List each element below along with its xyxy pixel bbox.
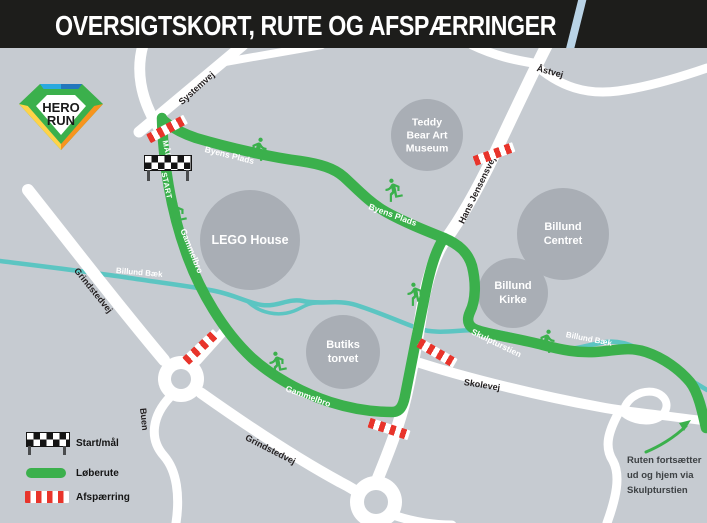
roundabout-south-island bbox=[364, 490, 388, 514]
roundabout-west-island bbox=[171, 369, 191, 389]
hero-run-logo: HERO RUN bbox=[16, 80, 106, 154]
legend-label-afspaerring: Afspærring bbox=[76, 492, 130, 503]
legend-barrier-icon bbox=[25, 491, 69, 503]
place-label-lego-house: LEGO House bbox=[211, 233, 288, 247]
legend-route-icon bbox=[26, 468, 66, 478]
header-bar: OVERSIGTSKORT, RUTE OG AFSPÆRRINGER bbox=[0, 0, 707, 48]
event-map-page: { "header": { "title": "OVERSIGTSKORT, R… bbox=[0, 0, 707, 523]
roads bbox=[28, 45, 707, 523]
place-label-teddy-museum: Teddy Bear Art Museum bbox=[406, 117, 449, 156]
place-label-billund-kirke: Billund Kirke bbox=[494, 279, 531, 307]
road-through-header bbox=[565, 0, 586, 48]
route-arrow-icon bbox=[646, 420, 691, 452]
legend-label-loeberute: Løberute bbox=[76, 468, 119, 479]
road-buen bbox=[154, 397, 177, 523]
page-title: OVERSIGTSKORT, RUTE OG AFSPÆRRINGER bbox=[55, 10, 556, 42]
legend-label-start-maal: Start/mål bbox=[76, 438, 119, 449]
place-label-butikstorvet: Butiks torvet bbox=[326, 338, 360, 366]
road-south-branch bbox=[607, 412, 619, 523]
road-top-curve bbox=[140, 45, 158, 127]
road-skolevej bbox=[420, 363, 626, 411]
road-stub-se bbox=[396, 516, 452, 523]
road-aastvej bbox=[472, 45, 707, 92]
logo-text-run: RUN bbox=[47, 113, 75, 128]
route-continuation-note: Ruten fortsætter ud og hjem via Skulptur… bbox=[627, 453, 707, 498]
place-label-billund-centret: Billund Centret bbox=[544, 220, 583, 248]
runner-icon bbox=[385, 179, 402, 202]
